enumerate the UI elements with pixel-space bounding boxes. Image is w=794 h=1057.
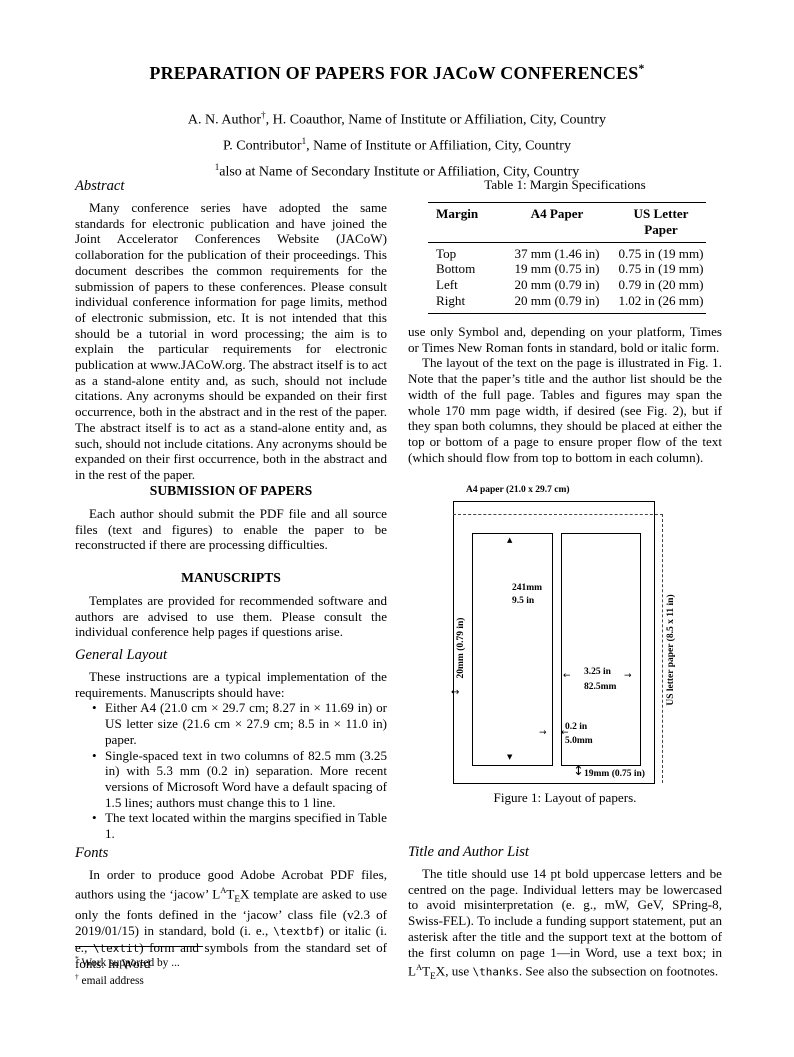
table-caption: Table 1: Margin Specifications: [408, 177, 722, 193]
list-item: Single-spaced text in two columns of 82.…: [75, 748, 387, 811]
manuscripts-heading: MANUSCRIPTS: [75, 570, 387, 586]
body-text-section: use only Symbol and, depending on your p…: [408, 324, 722, 465]
list-item-text: Single-spaced text in two columns of 82.…: [105, 748, 387, 810]
us-letter-outline-top: [453, 514, 663, 515]
arrow-right-icon: →: [624, 672, 632, 681]
left-right-arrow-icon: ↔: [451, 688, 459, 697]
arrow-right-icon: →: [539, 729, 547, 738]
general-layout-intro: These instructions are a typical impleme…: [75, 669, 387, 700]
footnote-email: † email address: [75, 970, 387, 988]
arrow-down-icon: ▼: [507, 753, 512, 762]
submission-section: SUBMISSION OF PAPERS Each author should …: [75, 483, 387, 553]
footnote-section: * Work supported by ... † email address: [75, 946, 387, 989]
figure-caption: Figure 1: Layout of papers.: [408, 790, 722, 806]
column-width-mm-label: 82.5mm: [584, 681, 616, 693]
title-author-list-section: Title and Author List The title should u…: [408, 844, 722, 985]
table-row: Right 20 mm (0.79 in) 1.02 in (26 mm): [428, 293, 706, 313]
submission-text: Each author should submit the PDF file a…: [75, 506, 387, 553]
body-paragraph-continuation: use only Symbol and, depending on your p…: [408, 324, 722, 355]
column-width-in-label: 3.25 in: [584, 666, 611, 678]
table-row: Bottom 19 mm (0.75 in) 0.75 in (19 mm): [428, 261, 706, 277]
arrow-up-icon: ▲: [507, 536, 512, 545]
table-cell: 0.75 in (19 mm): [616, 246, 706, 262]
general-layout-heading: General Layout: [75, 647, 387, 664]
table-cell: Top: [428, 246, 498, 262]
list-item-text: Either A4 (21.0 cm × 29.7 cm; 8.27 in × …: [105, 700, 387, 746]
table-cell: 0.75 in (19 mm): [616, 261, 706, 277]
arrow-left-icon: ←: [563, 672, 571, 681]
table-header-row: Margin A4 Paper US Letter Paper: [428, 203, 706, 243]
gap-mm-label: 5.0mm: [565, 735, 593, 747]
table-cell: 37 mm (1.46 in): [498, 246, 616, 262]
footnote-funding: * Work supported by ...: [75, 952, 387, 970]
manuscripts-section: MANUSCRIPTS Templates are provided for r…: [75, 570, 387, 640]
body-paragraph-layout: The layout of the text on the page is il…: [408, 355, 722, 465]
bottom-margin-label: 19mm (0.75 in): [584, 768, 645, 780]
table-header-cell: US Letter Paper: [616, 206, 706, 238]
table-cell: 1.02 in (26 mm): [616, 293, 706, 313]
figure-1: A4 paper (21.0 x 29.7 cm) ▲ ▼ 241mm 9.5 …: [408, 485, 722, 817]
paper-page: PREPARATION OF PAPERS FOR JACoW CONFEREN…: [0, 0, 794, 1057]
manuscripts-text: Templates are provided for recommended s…: [75, 593, 387, 640]
up-down-arrow-icon: ↕: [573, 767, 584, 776]
table-row: Left 20 mm (0.79 in) 0.79 in (20 mm): [428, 277, 706, 293]
figure-a4-label: A4 paper (21.0 x 29.7 cm): [466, 484, 570, 496]
abstract-text: Many conference series have adopted the …: [75, 200, 387, 483]
abstract-heading: Abstract: [75, 178, 387, 195]
title-author-list-text: The title should use 14 pt bold uppercas…: [408, 866, 722, 985]
us-letter-label: US letter paper (8.5 x 11 in): [666, 594, 676, 705]
footnote-rule: [75, 946, 203, 947]
column-height-mm-label: 241mm: [512, 582, 542, 594]
table-cell: 20 mm (0.79 in): [498, 277, 616, 293]
gap-in-label: 0.2 in: [565, 721, 587, 733]
list-item: The text located within the margins spec…: [75, 810, 387, 841]
table-cell: 20 mm (0.79 in): [498, 293, 616, 313]
submission-heading: SUBMISSION OF PAPERS: [75, 483, 387, 499]
list-item-text: The text located within the margins spec…: [105, 810, 387, 841]
fonts-heading: Fonts: [75, 845, 387, 862]
us-letter-outline-right: [662, 514, 663, 783]
author-line-2: P. Contributor1, Name of Institute or Af…: [0, 131, 794, 157]
paper-title: PREPARATION OF PAPERS FOR JACoW CONFEREN…: [0, 62, 794, 84]
table-cell: 0.79 in (20 mm): [616, 277, 706, 293]
author-line-1: A. N. Author†, H. Coauthor, Name of Inst…: [0, 105, 794, 131]
table-header-cell: Margin: [428, 206, 498, 238]
table-cell: Right: [428, 293, 498, 313]
table-header-cell: A4 Paper: [498, 206, 616, 238]
general-layout-section: General Layout These instructions are a …: [75, 647, 387, 842]
margin-table: Margin A4 Paper US Letter Paper Top 37 m…: [428, 202, 706, 314]
table-cell: Left: [428, 277, 498, 293]
left-margin-label: 20mm (0.79 in): [456, 618, 466, 679]
author-block: A. N. Author†, H. Coauthor, Name of Inst…: [0, 105, 794, 183]
margin-table-section: Table 1: Margin Specifications Margin A4…: [408, 176, 722, 314]
title-author-list-heading: Title and Author List: [408, 844, 722, 861]
table-cell: 19 mm (0.75 in): [498, 261, 616, 277]
table-row: Top 37 mm (1.46 in) 0.75 in (19 mm): [428, 246, 706, 262]
list-item: Either A4 (21.0 cm × 29.7 cm; 8.27 in × …: [75, 700, 387, 747]
abstract-section: Abstract Many conference series have ado…: [75, 178, 387, 483]
column-height-in-label: 9.5 in: [512, 595, 534, 607]
table-cell: Bottom: [428, 261, 498, 277]
requirements-list: Either A4 (21.0 cm × 29.7 cm; 8.27 in × …: [75, 700, 387, 841]
